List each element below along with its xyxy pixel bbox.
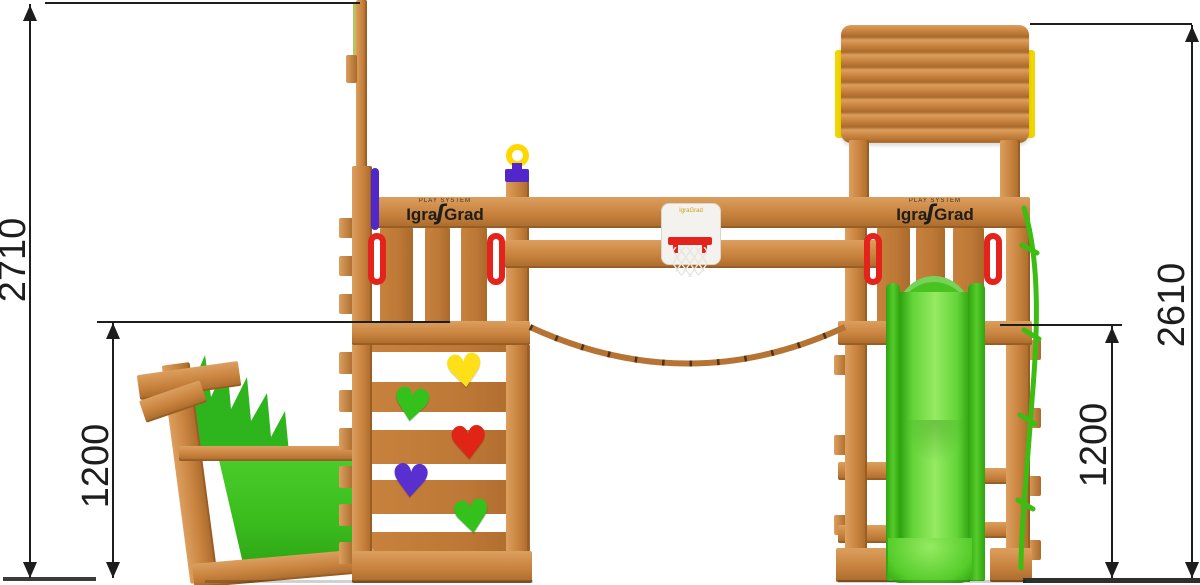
baluster-panel bbox=[425, 228, 450, 323]
extension-line-top-right bbox=[1030, 23, 1192, 25]
brand-logo: PLAY SYSTEM IgraʃGrad bbox=[890, 199, 980, 224]
arrowhead-down-icon bbox=[1105, 562, 1119, 578]
purple-hand-grip bbox=[371, 168, 379, 230]
slide-side-rail bbox=[886, 283, 900, 581]
basketball-rim bbox=[668, 237, 712, 245]
ground-line-right bbox=[1023, 578, 1200, 583]
roof-post bbox=[1000, 140, 1020, 200]
slide-side-rail bbox=[968, 283, 985, 581]
brand-wordmark: IgraʃGrad bbox=[400, 204, 490, 224]
climbing-hold-heart-yellow: ♥ bbox=[442, 346, 488, 396]
tower-roof bbox=[841, 25, 1029, 143]
red-grab-handle bbox=[984, 233, 1002, 285]
arrowhead-up-icon bbox=[1185, 26, 1199, 42]
dim-label-right-total: 2610 bbox=[1152, 255, 1192, 355]
telescope-toy-base bbox=[505, 169, 529, 182]
backboard-logo: IgraGrad bbox=[662, 208, 720, 214]
climbing-hold-heart-purple: ♥ bbox=[389, 457, 433, 505]
climbing-hold-heart-green: ♥ bbox=[388, 380, 435, 431]
arrowhead-up-icon bbox=[1105, 327, 1119, 343]
arrowhead-up-icon bbox=[23, 5, 37, 21]
dim-label-left-platform: 1200 bbox=[76, 416, 116, 516]
red-grab-handle bbox=[864, 233, 882, 285]
ground-line-left bbox=[3, 577, 96, 581]
wall-base-beam bbox=[352, 551, 532, 583]
climbing-net-rope bbox=[1010, 200, 1054, 580]
brand-microtext: PLAY SYSTEM bbox=[400, 199, 490, 204]
brand-wordmark: IgraʃGrad bbox=[890, 204, 980, 224]
baluster-panel bbox=[461, 228, 487, 323]
arrowhead-up-icon bbox=[106, 323, 120, 339]
dim-label-left-total: 2710 bbox=[0, 210, 33, 310]
ground-shadow-tower bbox=[838, 580, 1026, 583]
ground-shadow-boat bbox=[205, 580, 533, 583]
arrowhead-down-icon bbox=[106, 562, 120, 578]
red-grab-handle bbox=[368, 233, 386, 285]
extension-line-top-left bbox=[45, 2, 360, 4]
arrowhead-down-icon bbox=[23, 562, 37, 578]
brand-logo: PLAY SYSTEM IgraʃGrad bbox=[400, 199, 490, 224]
climbing-hold-heart-red: ♥ bbox=[447, 419, 491, 467]
dim-label-right-platform: 1200 bbox=[1074, 395, 1114, 495]
extension-line-left-platform bbox=[97, 321, 450, 323]
playset-dimension-diagram: 2710 1200 2610 1200 bbox=[0, 0, 1200, 585]
boat-rail bbox=[179, 446, 357, 461]
brand-microtext: PLAY SYSTEM bbox=[890, 199, 980, 204]
slide-wave-shading bbox=[900, 420, 970, 470]
arrowhead-down-icon bbox=[1185, 562, 1199, 578]
ladder-side-rail bbox=[352, 166, 372, 583]
roof-post bbox=[849, 140, 869, 200]
extension-line-right-platform bbox=[1000, 324, 1122, 326]
rope-swag bbox=[500, 300, 880, 390]
slide-foot bbox=[888, 538, 972, 583]
mast-cleat bbox=[346, 55, 357, 83]
climbing-hold-heart-green: ♥ bbox=[448, 492, 495, 543]
red-grab-handle bbox=[487, 233, 505, 285]
basketball-net bbox=[673, 247, 707, 277]
